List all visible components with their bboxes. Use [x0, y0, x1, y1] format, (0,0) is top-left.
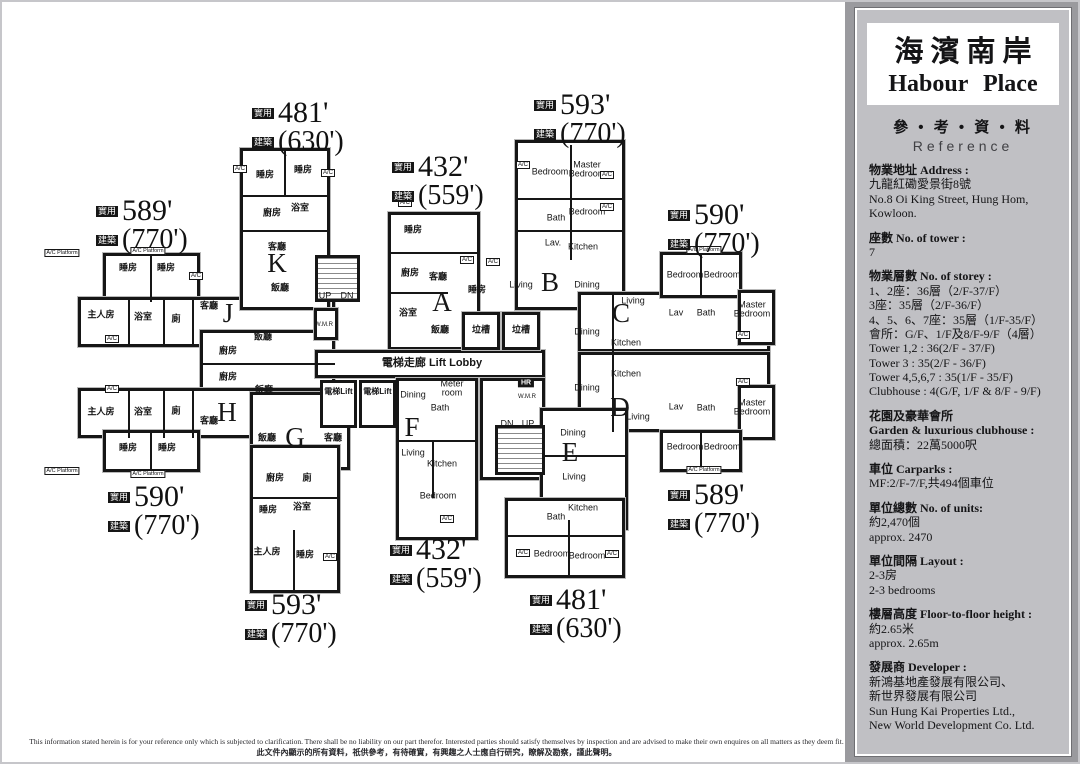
partition-line	[150, 430, 152, 472]
saleable-prefix: 實用	[668, 210, 690, 221]
room-label: Dining	[400, 390, 426, 399]
room-label: 浴室	[134, 407, 152, 416]
ac-box: A/C	[440, 515, 454, 523]
section-heading: 發展商 Developer :	[869, 660, 1057, 674]
section-line: 新世界發展有限公司	[869, 689, 1057, 703]
section-line: New World Development Co. Ltd.	[869, 718, 1057, 732]
section-line: 約2,470個	[869, 515, 1057, 529]
room-label: 浴室	[134, 312, 152, 321]
section-heading: 花園及豪華會所	[869, 409, 1057, 423]
gross-prefix: 建築	[668, 239, 690, 250]
saleable-area-row: 實用481'	[252, 98, 344, 128]
unit-letter: D	[610, 393, 630, 421]
room-label: 睡房	[157, 263, 175, 272]
reference-panel: 海濱南岸 Habour Place 參 • 考 • 資 • 料 Referenc…	[855, 8, 1071, 756]
partition-line	[518, 198, 625, 200]
saleable-prefix: 實用	[252, 108, 274, 119]
saleable-prefix: 實用	[96, 206, 118, 217]
partition-line	[192, 300, 194, 347]
ac-box: A/C	[516, 161, 530, 169]
partition-line	[163, 390, 165, 438]
saleable-area-value: 593'	[560, 90, 610, 120]
room-label: 廁	[171, 406, 180, 415]
section-line: 3座：35層（2/F-36/F）	[869, 298, 1057, 312]
section-line: 7	[869, 245, 1057, 259]
section-line: No.8 Oi King Street, Hung Hom,	[869, 192, 1057, 206]
gross-prefix: 建築	[530, 624, 552, 635]
room-label: W.M.R	[518, 394, 536, 400]
saleable-area-value: 590'	[694, 200, 744, 230]
section-heading: 單位總數 No. of units:	[869, 501, 1057, 515]
gross-prefix: 建築	[96, 235, 118, 246]
unit-letter: K	[267, 249, 287, 277]
disclaimer-english: This information stated herein is for yo…	[28, 737, 845, 746]
ac-platform-box: A/C Platform	[686, 466, 721, 474]
gross-prefix: 建築	[390, 574, 412, 585]
gross-prefix: 建築	[534, 129, 556, 140]
lift-label: 電梯Lift	[324, 386, 352, 425]
section-line: Tower 3 : 35(2/F - 36/F)	[869, 356, 1057, 370]
room-label: UP	[522, 419, 535, 428]
gross-prefix: 建築	[668, 519, 690, 530]
unit-letter: A	[432, 288, 452, 316]
info-section: 座數 No. of tower :7	[869, 231, 1057, 260]
gross-prefix: 建築	[252, 137, 274, 148]
saleable-area-row: 實用589'	[668, 480, 760, 510]
room-label: 飯廳	[271, 283, 289, 292]
room-label: 飯廳	[258, 433, 276, 442]
area-label: 實用593'建築(770')	[245, 590, 337, 648]
room-label: Master Bedroom	[734, 301, 771, 320]
info-section: 單位間隔 Layout :2-3房2-3 bedrooms	[869, 554, 1057, 597]
section-line: Tower 4,5,6,7 : 35(1/F - 35/F)	[869, 370, 1057, 384]
room-label: 主人房	[253, 547, 280, 556]
saleable-prefix: 實用	[390, 545, 412, 556]
saleable-area-value: 432'	[418, 152, 468, 182]
staircase	[495, 425, 545, 475]
gross-area-value: (770')	[271, 620, 337, 648]
room-label: Bedroom	[667, 270, 704, 279]
area-label: 實用590'建築(770')	[108, 482, 200, 540]
saleable-prefix: 實用	[108, 492, 130, 503]
room-label: 飯廳	[254, 332, 272, 341]
room-label: 廚房	[266, 473, 284, 482]
room-label: 電梯走廊 Lift Lobby	[382, 358, 482, 370]
saleable-area-row: 實用590'	[108, 482, 200, 512]
ac-box: A/C	[600, 203, 614, 211]
saleable-area-value: 589'	[694, 480, 744, 510]
room-label: 廚房	[263, 208, 281, 217]
info-section: 車位 Carparks :MF:2/F-7/F,共494個車位	[869, 462, 1057, 491]
gross-prefix: 建築	[108, 521, 130, 532]
room-label: 睡房	[294, 165, 312, 174]
reference-heading-chinese: 參 • 考 • 資 • 料	[857, 116, 1069, 137]
room-label: Bath	[547, 512, 566, 521]
gross-area-row: 建築(770')	[108, 512, 200, 540]
ac-platform-box: A/C Platform	[44, 249, 79, 257]
unit-letter: H	[217, 398, 237, 426]
partition-line	[250, 497, 340, 499]
room-label: Living	[626, 412, 650, 421]
room-label: W.M.R	[315, 322, 333, 328]
room-label: 主人房	[87, 407, 114, 416]
saleable-area-value: 481'	[278, 98, 328, 128]
room-label: 廚房	[219, 372, 237, 381]
room-label: Bedroom	[532, 167, 569, 176]
partition-line	[540, 455, 628, 457]
ac-box: A/C	[323, 553, 337, 561]
section-line: Kowloon.	[869, 206, 1057, 220]
unit-letter: G	[285, 423, 305, 451]
room-label: Bath	[697, 403, 716, 412]
saleable-prefix: 實用	[392, 162, 414, 173]
room-label: 垃槽	[512, 325, 530, 334]
info-section: 樓層高度 Floor-to-floor height :約2.65米approx…	[869, 607, 1057, 650]
room-label: 客廳	[429, 272, 447, 281]
section-line: 2-3房	[869, 568, 1057, 582]
area-label: 實用432'建築(559')	[390, 535, 482, 593]
gross-area-value: (770')	[134, 512, 200, 540]
gross-area-value: (559')	[418, 182, 484, 210]
area-label: 實用589'建築(770')	[96, 196, 188, 254]
ac-box: A/C	[600, 171, 614, 179]
room-label: 浴室	[293, 502, 311, 511]
gross-area-value: (770')	[122, 226, 188, 254]
ac-box: A/C	[105, 335, 119, 343]
ac-box: A/C	[105, 385, 119, 393]
lift-box: 電梯Lift	[320, 380, 357, 428]
room-label: 睡房	[119, 263, 137, 272]
room-label: Lav	[669, 402, 684, 411]
partition-line	[388, 252, 480, 254]
unit-letter: J	[223, 299, 234, 327]
room-label: Bath	[431, 403, 450, 412]
saleable-area-row: 實用593'	[245, 590, 337, 620]
project-title-chinese: 海濱南岸	[874, 28, 1059, 70]
ac-box: A/C	[605, 550, 619, 558]
room-label: 廚房	[401, 268, 419, 277]
gross-area-value: (630')	[278, 128, 344, 156]
info-section: 物業地址 Address :九龍紅磡愛景街8號No.8 Oi King Stre…	[869, 163, 1057, 221]
section-heading: 物業層數 No. of storey :	[869, 269, 1057, 283]
partition-line	[192, 390, 194, 438]
unit-letter: E	[562, 438, 579, 466]
partition-line	[505, 535, 625, 537]
room-label: 睡房	[259, 505, 277, 514]
partition-line	[518, 230, 625, 232]
room-label: DN	[341, 291, 354, 300]
room-label: Living	[401, 448, 425, 457]
room-label: 浴室	[291, 203, 309, 212]
section-heading: 單位間隔 Layout :	[869, 554, 1057, 568]
room-label: Lav	[669, 308, 684, 317]
room-label: 主人房	[87, 310, 114, 319]
saleable-area-value: 589'	[122, 196, 172, 226]
area-label: 實用590'建築(770')	[668, 200, 760, 258]
project-title-box: 海濱南岸 Habour Place	[867, 23, 1059, 105]
gross-area-row: 建築(770')	[245, 620, 337, 648]
room-label: Kitchen	[611, 338, 641, 347]
info-section: 發展商 Developer :新鴻基地產發展有限公司、新世界發展有限公司Sun …	[869, 660, 1057, 732]
ac-box: A/C	[516, 549, 530, 557]
gross-area-row: 建築(770')	[668, 510, 760, 538]
room-label: Bath	[547, 213, 566, 222]
gross-area-row: 建築(770')	[668, 230, 760, 258]
room-label: UP	[319, 291, 332, 300]
gross-area-value: (630')	[556, 615, 622, 643]
ac-box: A/C	[736, 378, 750, 386]
section-line: Clubhouse : 4(G/F, 1/F & 8/F - 9/F)	[869, 384, 1057, 398]
lift-label: 電梯Lift	[363, 386, 391, 425]
info-section: 物業層數 No. of storey :1、2座：36層（2/F-37/F）3座…	[869, 269, 1057, 399]
room-label: Meter room	[440, 380, 463, 399]
saleable-area-row: 實用589'	[96, 196, 188, 226]
room-label: 睡房	[468, 285, 486, 294]
info-section: 花園及豪華會所Garden & luxurious clubhouse :總面積…	[869, 409, 1057, 452]
section-line: 總面積：22萬5000呎	[869, 438, 1057, 452]
section-heading: 車位 Carparks :	[869, 462, 1057, 476]
gross-area-value: (770')	[694, 510, 760, 538]
room-label: Bedroom	[569, 551, 606, 560]
gross-area-row: 建築(630')	[530, 615, 622, 643]
room-label: 飯廳	[255, 385, 273, 394]
saleable-area-row: 實用432'	[390, 535, 482, 565]
section-line: 會所：G/F、1/F及8/F-9/F（4層）	[869, 327, 1057, 341]
room-label: Master Bedroom	[734, 399, 771, 418]
area-label: 實用432'建築(559')	[392, 152, 484, 210]
section-heading: 樓層高度 Floor-to-floor height :	[869, 607, 1057, 621]
info-section: 單位總數 No. of units:約2,470個approx. 2470	[869, 501, 1057, 544]
section-line: approx. 2470	[869, 530, 1057, 544]
gross-area-row: 建築(770')	[96, 226, 188, 254]
room-label: 飯廳	[431, 325, 449, 334]
partition-line	[150, 253, 152, 302]
room-label: DN	[501, 419, 514, 428]
gross-area-value: (559')	[416, 565, 482, 593]
gross-area-row: 建築(630')	[252, 128, 344, 156]
project-title-english: Habour Place	[867, 71, 1059, 98]
reference-sidebar: 海濱南岸 Habour Place 參 • 考 • 資 • 料 Referenc…	[845, 0, 1080, 764]
section-line: MF:2/F-7/F,共494個車位	[869, 476, 1057, 490]
area-label: 實用481'建築(630')	[252, 98, 344, 156]
room-label: 廁	[171, 314, 180, 323]
saleable-area-value: 432'	[416, 535, 466, 565]
ac-platform-box: A/C Platform	[130, 470, 165, 478]
floor-plan: 電梯Lift電梯Lift睡房睡房主人房浴室廁客廳飯廳廚房廚房飯廳主人房浴室廁客廳…	[0, 0, 845, 764]
section-line: 4、5、6、7座：35層（1/F-35/F）	[869, 313, 1057, 327]
section-heading: 座數 No. of tower :	[869, 231, 1057, 245]
ac-box: A/C	[233, 165, 247, 173]
reference-heading-english: Reference	[857, 138, 1069, 154]
room-label: Bedroom	[704, 442, 741, 451]
room-label: Dining	[574, 280, 600, 289]
disclaimer-chinese: 此文件內顯示的所有資料，祇供參考，有待確實，有興趣之人士應自行研究，瞭解及勘察，…	[28, 747, 845, 758]
area-label: 實用481'建築(630')	[530, 585, 622, 643]
saleable-area-row: 實用593'	[534, 90, 626, 120]
ac-platform-box: A/C Platform	[44, 467, 79, 475]
saleable-prefix: 實用	[534, 100, 556, 111]
room-label: 睡房	[296, 550, 314, 559]
room-label: Kitchen	[427, 459, 457, 468]
gross-area-row: 建築(770')	[534, 120, 626, 148]
section-heading: 物業地址 Address :	[869, 163, 1057, 177]
partition-line	[240, 230, 330, 232]
saleable-area-row: 實用481'	[530, 585, 622, 615]
section-line: 約2.65米	[869, 622, 1057, 636]
room-label: Kitchen	[568, 503, 598, 512]
room-label: Living	[562, 472, 586, 481]
room-label: 客廳	[200, 416, 218, 425]
room-label: Bedroom	[667, 442, 704, 451]
partition-line	[128, 300, 130, 347]
area-label: 實用589'建築(770')	[668, 480, 760, 538]
section-line: 2-3 bedrooms	[869, 583, 1057, 597]
unit-letter: C	[612, 299, 630, 327]
section-line: 1、2座：36層（2/F-37/F）	[869, 284, 1057, 298]
section-line: Sun Hung Kai Properties Ltd.,	[869, 704, 1057, 718]
room-label: 垃槽	[472, 325, 490, 334]
section-line: Tower 1,2 : 36(2/F - 37/F)	[869, 341, 1057, 355]
saleable-prefix: 實用	[245, 600, 267, 611]
room-label: Kitchen	[568, 242, 598, 251]
saleable-prefix: 實用	[530, 595, 552, 606]
room-label: 睡房	[256, 170, 274, 179]
partition-line	[163, 300, 165, 347]
partition-line	[240, 195, 330, 197]
room-label: Kitchen	[611, 369, 641, 378]
room-label: Lav.	[545, 238, 561, 247]
room-label: Bedroom	[420, 491, 457, 500]
saleable-area-value: 590'	[134, 482, 184, 512]
partition-line	[200, 363, 335, 365]
ac-box: A/C	[321, 169, 335, 177]
saleable-area-row: 實用432'	[392, 152, 484, 182]
section-line: 九龍紅磡愛景街8號	[869, 177, 1057, 191]
section-line: approx. 2.65m	[869, 636, 1057, 650]
room-label: 廁	[302, 473, 311, 482]
room-label: 睡房	[404, 225, 422, 234]
room-label: 廚房	[219, 346, 237, 355]
room-label: Dining	[574, 383, 600, 392]
unit-letter: F	[404, 413, 419, 441]
unit-wall	[250, 445, 340, 593]
saleable-area-row: 實用590'	[668, 200, 760, 230]
ac-box: A/C	[189, 272, 203, 280]
saleable-prefix: 實用	[668, 490, 690, 501]
room-label: 客廳	[324, 433, 342, 442]
gross-area-row: 建築(559')	[392, 182, 484, 210]
ac-box: A/C	[460, 256, 474, 264]
partition-line	[128, 390, 130, 438]
room-label: Bedroom	[704, 270, 741, 279]
ac-box: A/C	[736, 331, 750, 339]
partition-line	[293, 530, 295, 593]
room-label: 睡房	[158, 443, 176, 452]
room-label: 浴室	[399, 308, 417, 317]
gross-prefix: 建築	[245, 629, 267, 640]
room-label: 睡房	[119, 443, 137, 452]
ac-box: A/C	[486, 258, 500, 266]
unit-letter: B	[541, 268, 559, 296]
room-label: Living	[509, 280, 533, 289]
info-sections: 物業地址 Address :九龍紅磡愛景街8號No.8 Oi King Stre…	[869, 163, 1057, 732]
lift-box: 電梯Lift	[359, 380, 396, 428]
area-label: 實用593'建築(770')	[534, 90, 626, 148]
room-label: HR	[518, 378, 534, 387]
section-line: 新鴻基地產發展有限公司、	[869, 675, 1057, 689]
section-heading: Garden & luxurious clubhouse :	[869, 423, 1057, 437]
gross-area-row: 建築(559')	[390, 565, 482, 593]
unit-wall	[505, 498, 625, 578]
saleable-area-value: 593'	[271, 590, 321, 620]
room-label: 客廳	[200, 301, 218, 310]
saleable-area-value: 481'	[556, 585, 606, 615]
room-label: Bath	[697, 308, 716, 317]
gross-area-value: (770')	[694, 230, 760, 258]
gross-area-value: (770')	[560, 120, 626, 148]
gross-prefix: 建築	[392, 191, 414, 202]
room-label: Bedroom	[534, 549, 571, 558]
room-label: Dining	[574, 327, 600, 336]
